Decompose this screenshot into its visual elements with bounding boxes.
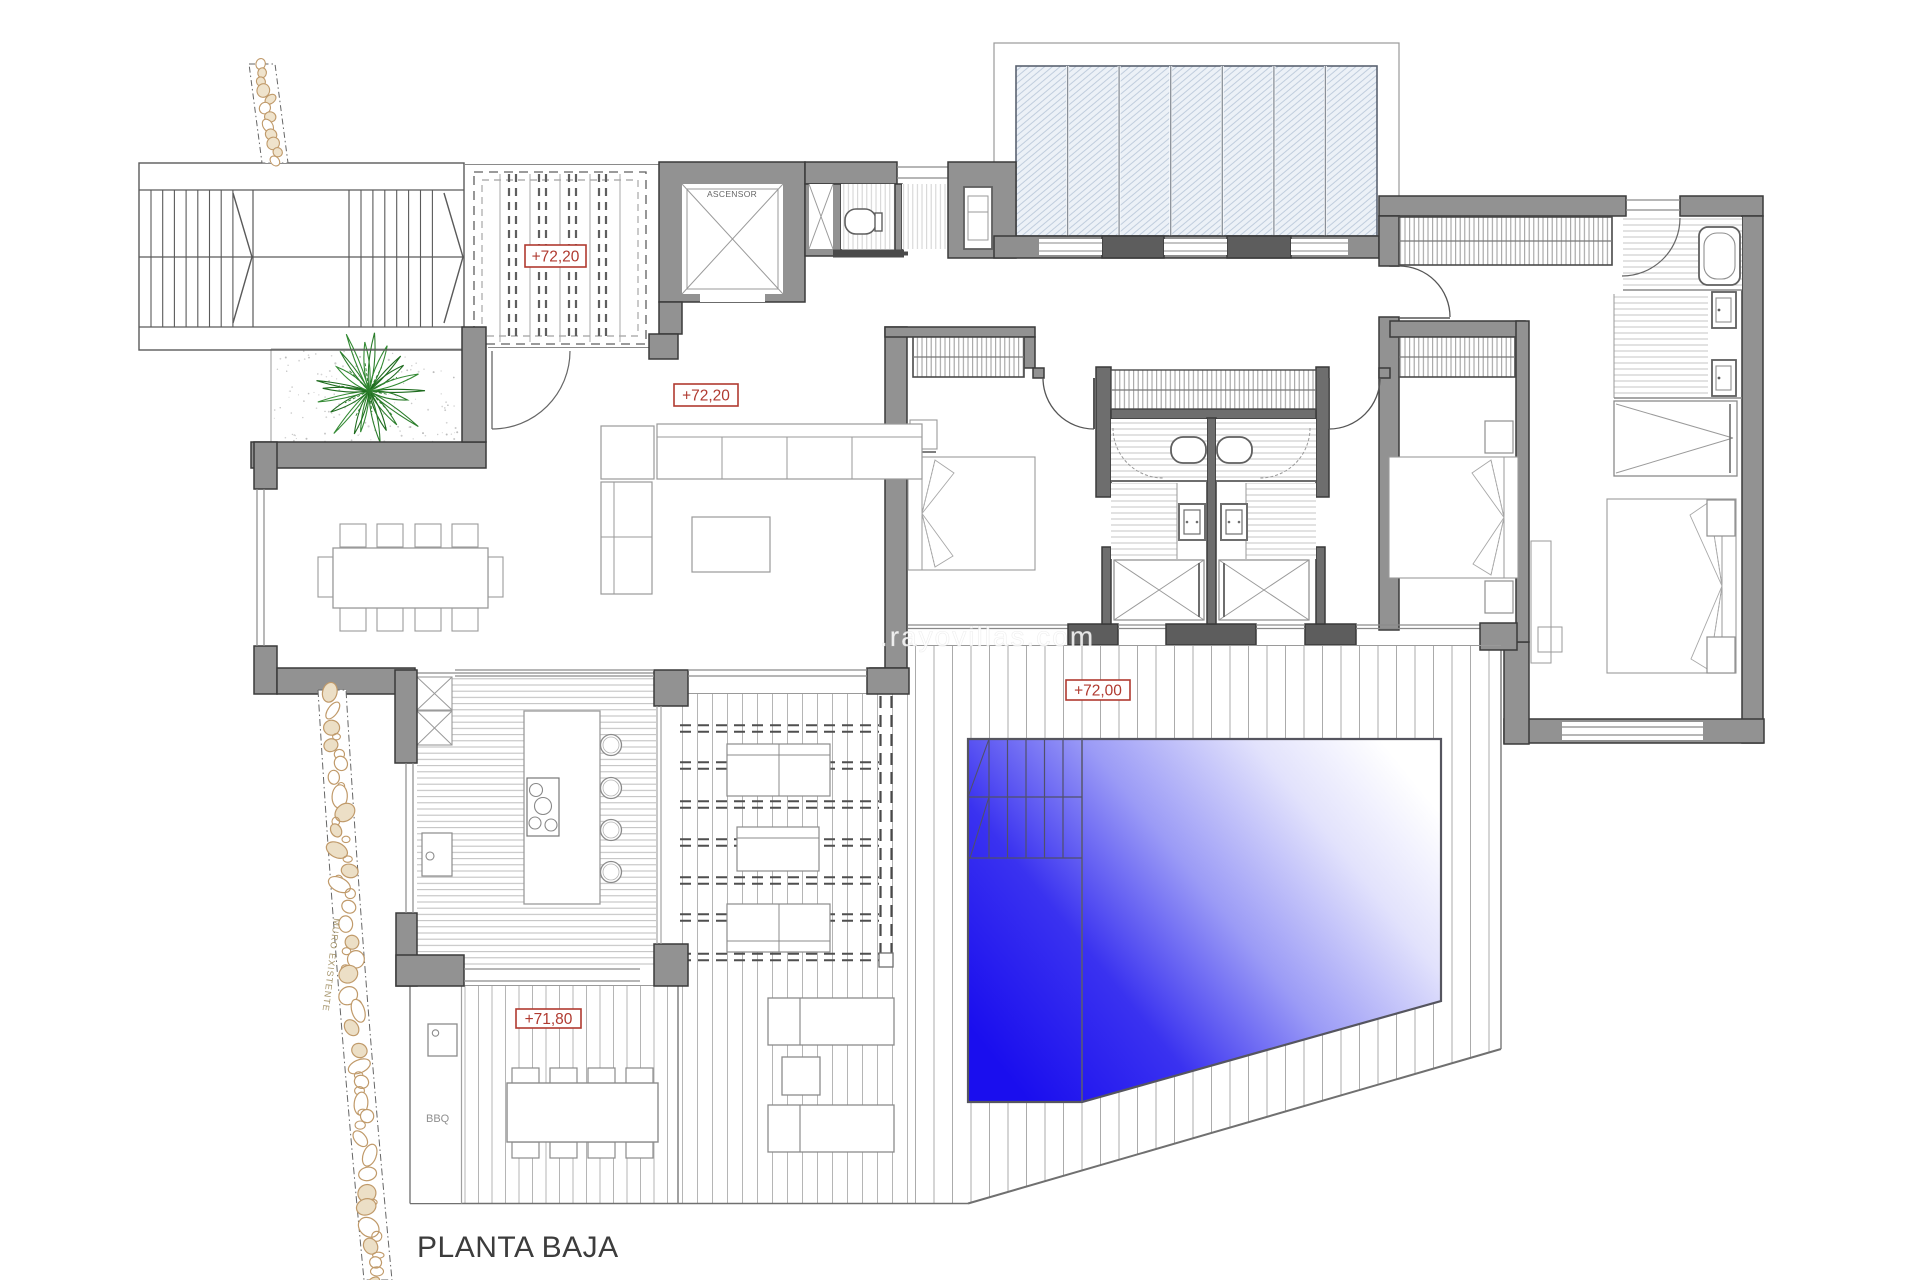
svg-text:.rayovillas.com: .rayovillas.com bbox=[880, 621, 1095, 652]
svg-text:ASCENSOR: ASCENSOR bbox=[707, 189, 757, 199]
svg-text:+72,20: +72,20 bbox=[682, 388, 730, 405]
svg-text:BBQ: BBQ bbox=[426, 1113, 450, 1125]
svg-text:+72,20: +72,20 bbox=[532, 249, 580, 266]
svg-text:+71,80: +71,80 bbox=[525, 1011, 573, 1028]
svg-text:+72,00: +72,00 bbox=[1074, 683, 1122, 700]
svg-text:PLANTA BAJA: PLANTA BAJA bbox=[417, 1231, 619, 1264]
